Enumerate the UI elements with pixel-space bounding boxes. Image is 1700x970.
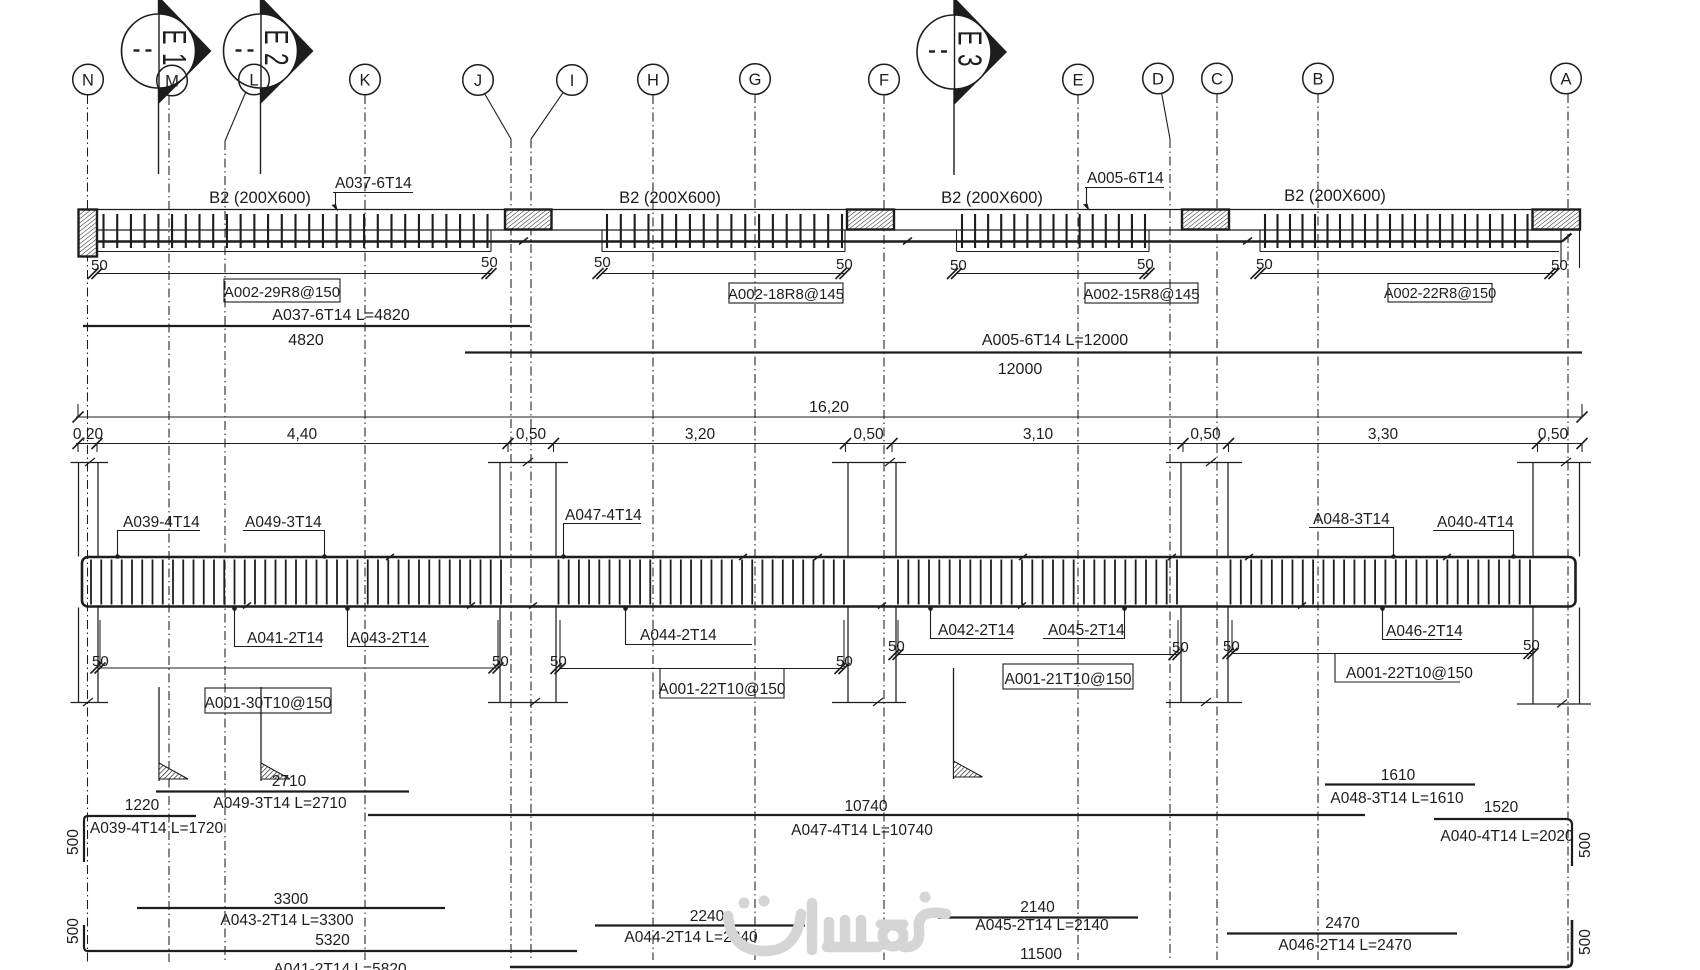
svg-text:50: 50 xyxy=(950,257,967,274)
svg-text:50: 50 xyxy=(1551,257,1568,274)
svg-text:50: 50 xyxy=(481,254,498,271)
svg-text:A001-30T10@150: A001-30T10@150 xyxy=(205,695,332,712)
svg-text:A039-4T14 L=1720: A039-4T14 L=1720 xyxy=(90,820,224,837)
svg-text:A037-6T14 L=4820: A037-6T14 L=4820 xyxy=(272,307,410,324)
svg-text:50: 50 xyxy=(1523,637,1540,654)
svg-text:A048-3T14: A048-3T14 xyxy=(1313,511,1390,528)
svg-text:M: M xyxy=(165,72,179,90)
svg-text:0,50: 0,50 xyxy=(516,426,547,443)
svg-text:1520: 1520 xyxy=(1484,799,1519,816)
svg-text:1220: 1220 xyxy=(125,797,160,814)
svg-text:B2 (200X600): B2 (200X600) xyxy=(941,189,1043,207)
svg-text:50: 50 xyxy=(1172,639,1189,656)
svg-text:G: G xyxy=(749,71,762,89)
svg-text:50: 50 xyxy=(1223,638,1240,655)
svg-text:50: 50 xyxy=(550,653,567,670)
svg-text:4820: 4820 xyxy=(288,332,324,349)
svg-text:A002-18R8@145: A002-18R8@145 xyxy=(728,286,844,303)
svg-text:A043-2T14: A043-2T14 xyxy=(350,630,427,647)
svg-text:B2 (200X600): B2 (200X600) xyxy=(619,189,721,207)
svg-text:A040-4T14 L=2020: A040-4T14 L=2020 xyxy=(1440,828,1574,845)
svg-text:A046-2T14: A046-2T14 xyxy=(1386,623,1463,640)
svg-text:3300: 3300 xyxy=(274,891,309,908)
svg-text:500: 500 xyxy=(1577,832,1594,858)
svg-text:16,20: 16,20 xyxy=(809,399,849,416)
svg-text:A037-6T14: A037-6T14 xyxy=(335,175,412,192)
svg-text:A: A xyxy=(1560,70,1571,88)
svg-text:0,20: 0,20 xyxy=(73,426,104,443)
svg-text:10740: 10740 xyxy=(844,798,887,815)
svg-text:2140: 2140 xyxy=(1020,899,1055,916)
svg-text:11500: 11500 xyxy=(1020,946,1062,963)
svg-text:3,10: 3,10 xyxy=(1023,426,1054,443)
svg-text:A005-6T14: A005-6T14 xyxy=(1087,170,1164,187)
svg-text:1610: 1610 xyxy=(1381,767,1416,784)
svg-text:A002-29R8@150: A002-29R8@150 xyxy=(224,284,340,301)
svg-text:A001-21T10@150: A001-21T10@150 xyxy=(1005,671,1132,688)
svg-text:B: B xyxy=(1312,70,1323,88)
svg-text:K: K xyxy=(359,71,370,89)
svg-text:B2 (200X600): B2 (200X600) xyxy=(1284,187,1386,205)
svg-text:A049-3T14: A049-3T14 xyxy=(245,514,322,531)
svg-text:B2 (200X600): B2 (200X600) xyxy=(209,189,311,207)
svg-text:50: 50 xyxy=(91,257,108,274)
svg-text:50: 50 xyxy=(492,653,509,670)
svg-text:A049-3T14 L=2710: A049-3T14 L=2710 xyxy=(213,795,347,812)
svg-text:E: E xyxy=(1072,71,1083,89)
svg-text:5320: 5320 xyxy=(315,932,350,949)
svg-text:50: 50 xyxy=(888,638,905,655)
svg-text:A047-4T14: A047-4T14 xyxy=(565,507,642,524)
svg-text:A048-3T14 L=1610: A048-3T14 L=1610 xyxy=(1330,790,1464,807)
svg-text:A041-2T14 L=5820: A041-2T14 L=5820 xyxy=(273,961,407,970)
svg-text:0,50: 0,50 xyxy=(1190,426,1221,443)
svg-text:0,50: 0,50 xyxy=(853,426,884,443)
svg-text:50: 50 xyxy=(1256,256,1273,273)
svg-text:A002-22R8@150: A002-22R8@150 xyxy=(1384,286,1496,302)
svg-text:4,40: 4,40 xyxy=(287,426,318,443)
svg-text:J: J xyxy=(474,72,482,90)
svg-text:500: 500 xyxy=(65,918,82,944)
svg-text:0,50: 0,50 xyxy=(1538,426,1569,443)
svg-text:A040-4T14: A040-4T14 xyxy=(1437,514,1514,531)
svg-text:3,20: 3,20 xyxy=(685,426,716,443)
svg-text:50: 50 xyxy=(836,653,853,670)
svg-text:A005-6T14 L=12000: A005-6T14 L=12000 xyxy=(982,332,1128,349)
svg-text:D: D xyxy=(1152,70,1164,88)
svg-text:3,30: 3,30 xyxy=(1368,426,1399,443)
svg-text:L: L xyxy=(249,71,258,89)
svg-text:C: C xyxy=(1211,70,1223,88)
svg-text:50: 50 xyxy=(1137,256,1154,273)
svg-text:50: 50 xyxy=(92,653,109,670)
svg-text:E3: E3 xyxy=(951,31,988,75)
svg-text:A042-2T14: A042-2T14 xyxy=(938,622,1015,639)
svg-text:12000: 12000 xyxy=(998,361,1043,378)
svg-text:A043-2T14 L=3300: A043-2T14 L=3300 xyxy=(220,912,354,929)
svg-text:N: N xyxy=(82,71,94,89)
svg-text:A039-4T14: A039-4T14 xyxy=(123,514,200,531)
svg-text:50: 50 xyxy=(594,254,611,271)
svg-text:A041-2T14: A041-2T14 xyxy=(247,630,324,647)
svg-text:A047-4T14 L=10740: A047-4T14 L=10740 xyxy=(791,822,933,839)
svg-text:A046-2T14 L=2470: A046-2T14 L=2470 xyxy=(1278,937,1412,954)
svg-text:F: F xyxy=(879,71,889,89)
svg-text:E1: E1 xyxy=(156,30,193,74)
svg-text:2470: 2470 xyxy=(1325,915,1360,932)
svg-text:2710: 2710 xyxy=(272,773,307,790)
svg-text:I: I xyxy=(570,72,575,90)
svg-text:A001-22T10@150: A001-22T10@150 xyxy=(1346,665,1473,682)
svg-text:500: 500 xyxy=(1577,929,1594,955)
svg-text:H: H xyxy=(647,71,659,89)
svg-text:50: 50 xyxy=(836,256,853,273)
svg-text:A002-15R8@145: A002-15R8@145 xyxy=(1083,286,1199,303)
svg-text:2240: 2240 xyxy=(690,908,725,925)
svg-text:500: 500 xyxy=(65,829,82,855)
svg-text:A045-2T14: A045-2T14 xyxy=(1048,622,1125,639)
svg-text:A044-2T14: A044-2T14 xyxy=(640,627,717,644)
svg-text:A001-22T10@150: A001-22T10@150 xyxy=(659,681,786,698)
svg-text:A045-2T14 L=2140: A045-2T14 L=2140 xyxy=(975,917,1109,934)
